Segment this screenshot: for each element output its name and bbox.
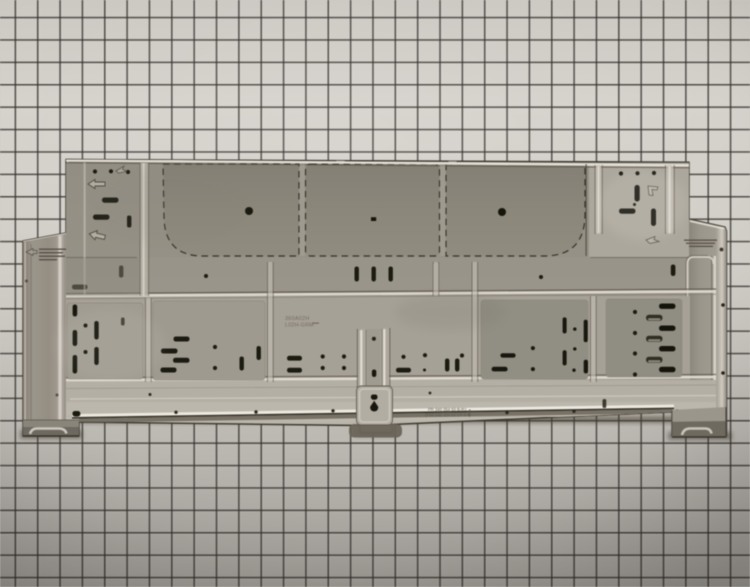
svg-text:(P04 345 354 50 LP 4-1): (P04 345 354 50 LP 4-1) [425,413,471,418]
svg-text:360A02H: 360A02H [285,316,310,322]
svg-text:PR 340 354 50 B-R1: PR 340 354 50 B-R1 [428,407,467,412]
svg-text:L02H-GRM: L02H-GRM [285,323,314,329]
